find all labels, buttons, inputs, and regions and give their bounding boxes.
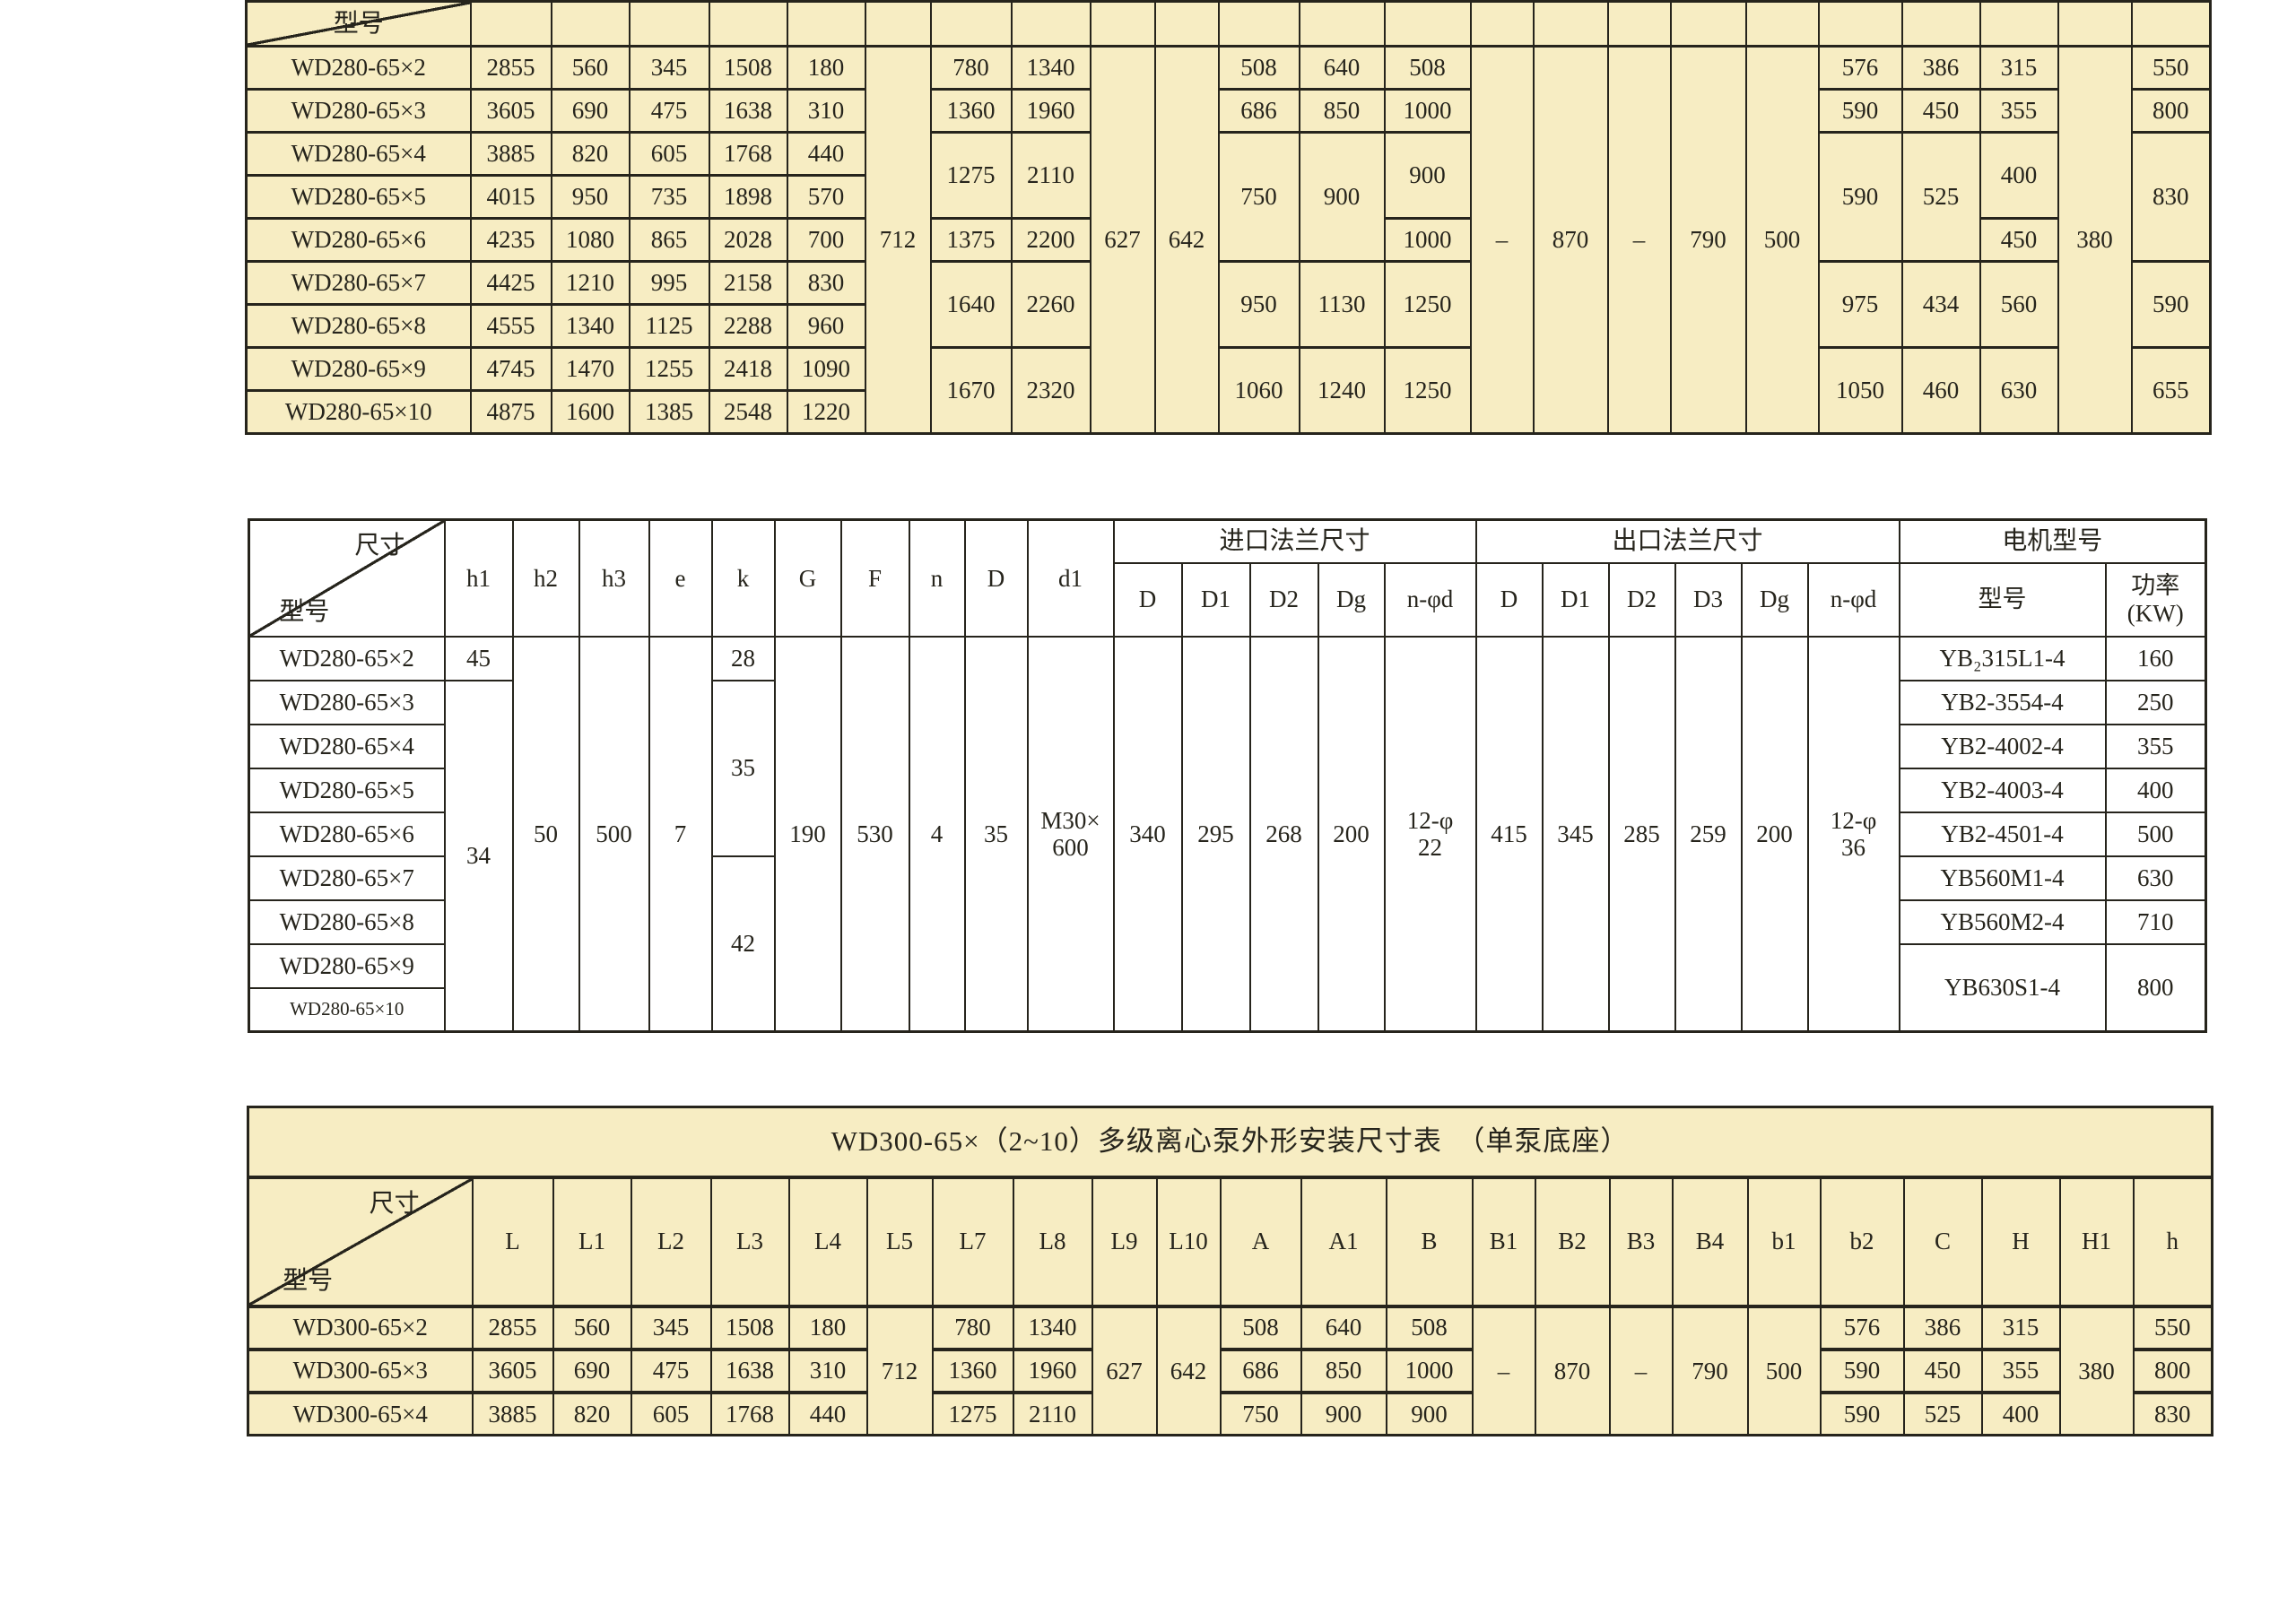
value-cell: 1340 [1012,47,1091,90]
value-cell: 340 [1114,637,1182,1032]
value-cell: 2418 [709,348,787,391]
value-cell: 750 [1221,1393,1301,1436]
value-cell: 1360 [933,1350,1013,1393]
dimension-model-diagonal-header: 尺寸型号 [248,1177,473,1306]
value-cell [2058,2,2132,47]
value-cell: 2110 [1012,133,1091,219]
column-header: H1 [2060,1177,2134,1306]
value-cell: 400 [1980,133,2058,219]
value-cell: 200 [1318,637,1385,1032]
table-title: WD300-65×（2~10）多级离心泵外形安装尺寸表 （单泵底座） [248,1107,2213,1177]
value-cell: 750 [1219,133,1300,262]
value-cell: 820 [552,133,630,176]
wd300-installation-dimension-table: WD300-65×（2~10）多级离心泵外形安装尺寸表 （单泵底座）尺寸型号LL… [247,1106,2213,1436]
value-cell: – [1471,47,1534,434]
value-cell: 640 [1301,1306,1387,1350]
value-cell: 7 [649,637,712,1032]
value-cell: 345 [630,47,709,90]
value-cell: 1385 [630,391,709,434]
value-cell: 590 [2132,262,2211,348]
column-header: h1 [445,520,513,637]
value-cell: 35 [965,637,1028,1032]
model-label: 型号 [334,10,384,38]
value-cell [630,2,709,47]
column-header: h2 [513,520,579,637]
value-cell: 500 [1746,47,1819,434]
value-cell: 380 [2058,47,2132,434]
row-label: WD280-65×8 [247,305,471,348]
row-label: WD280-65×2 [249,637,445,681]
value-cell [1534,2,1608,47]
value-cell: 259 [1675,637,1742,1032]
value-cell: 295 [1182,637,1250,1032]
value-cell: 1250 [1385,348,1471,434]
value-cell: 605 [631,1393,711,1436]
value-cell: 627 [1091,47,1155,434]
value-cell: 1250 [1385,262,1471,348]
motor-power: 160 [2106,637,2206,681]
wd280-installation-dimension-table: 型号WD280-65×22855560345150818071278013406… [245,0,2212,435]
value-cell: 850 [1300,90,1385,133]
value-cell: 900 [1300,133,1385,262]
column-header: D1 [1182,563,1250,637]
value-cell: 2158 [709,262,787,305]
value-cell: 1275 [931,133,1012,219]
value-cell: 900 [1385,133,1471,219]
value-cell: 900 [1301,1393,1387,1436]
row-label: WD280-65×4 [249,725,445,768]
value-cell: 1768 [711,1393,789,1436]
value-cell: 500 [1748,1306,1821,1436]
row-label: WD280-65×10 [249,988,445,1032]
motor-model: YB560M2-4 [1900,900,2106,944]
value-cell: 1340 [1013,1306,1092,1350]
column-header: L9 [1092,1177,1157,1306]
column-header: A1 [1301,1177,1387,1306]
column-header: b1 [1748,1177,1821,1306]
value-cell: 434 [1902,262,1980,348]
value-cell [1671,2,1746,47]
value-cell: 960 [787,305,865,348]
dimension-model-diagonal-header: 尺寸型号 [249,520,445,637]
column-header: B [1387,1177,1473,1306]
value-cell: 870 [1535,1306,1610,1436]
column-header: d1 [1028,520,1114,637]
value-cell: 800 [2132,90,2211,133]
value-cell [2132,2,2211,47]
value-cell: 4015 [471,176,552,219]
value-cell: 1080 [552,219,630,262]
value-cell [1608,2,1671,47]
value-cell: 1508 [711,1306,789,1350]
value-cell: 560 [1980,262,2058,348]
column-header: D [1114,563,1182,637]
value-cell: 45 [445,637,513,681]
value-cell: M30× 600 [1028,637,1114,1032]
value-cell [1091,2,1155,47]
value-cell: 686 [1219,90,1300,133]
row-label: WD280-65×9 [249,944,445,988]
value-cell: 560 [553,1306,631,1350]
column-header: C [1904,1177,1982,1306]
value-cell: 200 [1742,637,1808,1032]
diagonal-size-label: 尺寸 [370,1190,420,1218]
column-header: b2 [1821,1177,1904,1306]
value-cell: 3605 [473,1350,553,1393]
row-label: WD280-65×7 [249,856,445,900]
value-cell: 2288 [709,305,787,348]
value-cell: 525 [1902,133,1980,262]
value-cell: 310 [789,1350,867,1393]
value-cell: 1960 [1012,90,1091,133]
value-cell: 4 [909,637,965,1032]
row-label: WD280-65×7 [247,262,471,305]
value-cell: 1275 [933,1393,1013,1436]
value-cell: 1600 [552,391,630,434]
row-label: WD300-65×3 [248,1350,473,1393]
value-cell: 4875 [471,391,552,434]
column-header: A [1221,1177,1301,1306]
value-cell: 1210 [552,262,630,305]
column-header: h3 [579,520,649,637]
value-cell: 780 [933,1306,1013,1350]
motor-model: YB2-4002-4 [1900,725,2106,768]
value-cell: 550 [2134,1306,2213,1350]
value-cell: 180 [787,47,865,90]
value-cell: 285 [1609,637,1675,1032]
value-cell: 190 [775,637,841,1032]
value-cell: 1670 [931,348,1012,434]
value-cell: 1768 [709,133,787,176]
value-cell: 995 [630,262,709,305]
value-cell: 268 [1250,637,1318,1032]
value-cell: 508 [1387,1306,1473,1350]
value-cell: 790 [1671,47,1746,434]
value-cell: 180 [789,1306,867,1350]
value-cell: 590 [1819,90,1902,133]
value-cell: 2548 [709,391,787,434]
motor-model: YB2-3554-4 [1900,681,2106,725]
row-label: WD280-65×10 [247,391,471,434]
row-label: WD300-65×4 [248,1393,473,1436]
outlet-flange-group-header: 出口法兰尺寸 [1476,520,1900,563]
value-cell: 440 [787,133,865,176]
column-header: B1 [1473,1177,1535,1306]
diagonal-size-label: 尺寸 [354,532,404,560]
row-label: WD280-65×6 [249,812,445,856]
row-label: WD280-65×3 [247,90,471,133]
motor-power: 630 [2106,856,2206,900]
value-cell [787,2,865,47]
row-label: WD280-65×8 [249,900,445,944]
value-cell [1219,2,1300,47]
value-cell: 315 [1980,47,2058,90]
value-cell: 700 [787,219,865,262]
value-cell: 1130 [1300,262,1385,348]
value-cell: 28 [712,637,775,681]
column-header: B2 [1535,1177,1610,1306]
column-header: Dg [1318,563,1385,637]
value-cell: 460 [1902,348,1980,434]
value-cell: 576 [1821,1306,1904,1350]
column-header: n-φd [1808,563,1900,637]
value-cell: 590 [1821,1393,1904,1436]
motor-power: 400 [2106,768,2206,812]
motor-power-header: 功率 (KW) [2106,563,2206,637]
row-label: WD280-65×2 [247,47,471,90]
value-cell: 1960 [1013,1350,1092,1393]
column-header: D3 [1675,563,1742,637]
value-cell: 627 [1092,1306,1157,1436]
value-cell: 570 [787,176,865,219]
column-header: L2 [631,1177,711,1306]
value-cell: 1360 [931,90,1012,133]
value-cell: 975 [1819,262,1902,348]
value-cell: 1375 [931,219,1012,262]
value-cell [1012,2,1091,47]
value-cell [471,2,552,47]
value-cell: 34 [445,681,513,1032]
value-cell: 475 [631,1350,711,1393]
motor-model: YB560M1-4 [1900,856,2106,900]
value-cell: 605 [630,133,709,176]
value-cell: 686 [1221,1350,1301,1393]
value-cell: 530 [841,637,909,1032]
column-header: n [909,520,965,637]
value-cell: 475 [630,90,709,133]
column-header: L7 [933,1177,1013,1306]
value-cell: 310 [787,90,865,133]
model-header-clipped: 型号 [247,2,471,47]
value-cell: 4235 [471,219,552,262]
value-cell: 1898 [709,176,787,219]
value-cell [1746,2,1819,47]
value-cell: 2320 [1012,348,1091,434]
value-cell: 712 [867,1306,933,1436]
value-cell: 450 [1980,219,2058,262]
value-cell: 1255 [630,348,709,391]
value-cell [552,2,630,47]
value-cell [1471,2,1534,47]
value-cell: 450 [1904,1350,1982,1393]
motor-power: 800 [2106,944,2206,1032]
value-cell [1902,2,1980,47]
value-cell: 508 [1221,1306,1301,1350]
value-cell: 400 [1982,1393,2060,1436]
column-header: e [649,520,712,637]
value-cell: 655 [2132,348,2211,434]
value-cell: 712 [865,47,931,434]
column-header: B4 [1673,1177,1748,1306]
motor-power: 355 [2106,725,2206,768]
value-cell: 2855 [473,1306,553,1350]
column-header: D2 [1250,563,1318,637]
value-cell: 690 [552,90,630,133]
row-label: WD280-65×4 [247,133,471,176]
column-header: D [965,520,1028,637]
value-cell: 2110 [1013,1393,1092,1436]
value-cell: 830 [787,262,865,305]
value-cell: 1050 [1819,348,1902,434]
column-header: h [2134,1177,2213,1306]
document-page: 型号WD280-65×22855560345150818071278013406… [0,0,2296,1623]
value-cell: 950 [1219,262,1300,348]
row-label: WD300-65×2 [248,1306,473,1350]
value-cell: 1000 [1387,1350,1473,1393]
value-cell: 508 [1385,47,1471,90]
value-cell: 735 [630,176,709,219]
column-header: Dg [1742,563,1808,637]
value-cell: 1000 [1385,90,1471,133]
value-cell: 3885 [473,1393,553,1436]
value-cell: 12-φ 22 [1385,637,1476,1032]
value-cell: 830 [2134,1393,2213,1436]
value-cell: 2200 [1012,219,1091,262]
column-header: L5 [867,1177,933,1306]
value-cell: 1090 [787,348,865,391]
value-cell: 2260 [1012,262,1091,348]
motor-model: YB630S1-4 [1900,944,2106,1032]
motor-model: YB₂315L1-4 [1900,637,2106,681]
value-cell: 642 [1155,47,1219,434]
value-cell: 1340 [552,305,630,348]
value-cell: 450 [1902,90,1980,133]
column-header: D1 [1543,563,1609,637]
value-cell: 525 [1904,1393,1982,1436]
value-cell: 790 [1673,1306,1748,1436]
value-cell [1300,2,1385,47]
diagonal-model-label: 型号 [279,598,329,626]
value-cell: 3605 [471,90,552,133]
value-cell: 830 [2132,133,2211,262]
value-cell: 386 [1902,47,1980,90]
value-cell: 355 [1982,1350,2060,1393]
value-cell: 870 [1534,47,1608,434]
value-cell: 780 [931,47,1012,90]
motor-model: YB2-4003-4 [1900,768,2106,812]
column-header: L10 [1157,1177,1221,1306]
value-cell: 560 [552,47,630,90]
value-cell: 508 [1219,47,1300,90]
row-label: WD280-65×9 [247,348,471,391]
value-cell: – [1473,1306,1535,1436]
value-cell: 1470 [552,348,630,391]
column-header: H [1982,1177,2060,1306]
value-cell: 1638 [709,90,787,133]
value-cell: 550 [2132,47,2211,90]
column-header: L4 [789,1177,867,1306]
value-cell: 12-φ 36 [1808,637,1900,1032]
value-cell: 865 [630,219,709,262]
diagonal-model-label: 型号 [283,1267,333,1295]
motor-model: YB2-4501-4 [1900,812,2106,856]
column-header: F [841,520,909,637]
row-label: WD280-65×5 [249,768,445,812]
value-cell: 590 [1819,133,1902,262]
value-cell [1980,2,2058,47]
value-cell [1385,2,1471,47]
row-label: WD280-65×3 [249,681,445,725]
value-cell: 42 [712,856,775,1032]
value-cell [1155,2,1219,47]
value-cell [1819,2,1902,47]
value-cell: 4555 [471,305,552,348]
value-cell: – [1610,1306,1673,1436]
value-cell: 386 [1904,1306,1982,1350]
value-cell: – [1608,47,1671,434]
value-cell: 820 [553,1393,631,1436]
motor-model-header: 型号 [1900,563,2106,637]
value-cell: 380 [2060,1306,2134,1436]
value-cell: 4745 [471,348,552,391]
value-cell: 576 [1819,47,1902,90]
column-header: G [775,520,841,637]
value-cell: 1060 [1219,348,1300,434]
value-cell: 355 [1980,90,2058,133]
column-header: L8 [1013,1177,1092,1306]
value-cell: 690 [553,1350,631,1393]
value-cell: 315 [1982,1306,2060,1350]
value-cell [709,2,787,47]
column-header: B3 [1610,1177,1673,1306]
inlet-flange-group-header: 进口法兰尺寸 [1114,520,1476,563]
value-cell: 1125 [630,305,709,348]
value-cell: 630 [1980,348,2058,434]
value-cell: 50 [513,637,579,1032]
value-cell: 440 [789,1393,867,1436]
value-cell: 1220 [787,391,865,434]
value-cell: 415 [1476,637,1543,1032]
value-cell [865,2,931,47]
value-cell: 642 [1157,1306,1221,1436]
value-cell: 2855 [471,47,552,90]
motor-group-header: 电机型号 [1900,520,2206,563]
column-header: n-φd [1385,563,1476,637]
value-cell: 2028 [709,219,787,262]
value-cell: 900 [1387,1393,1473,1436]
value-cell: 1000 [1385,219,1471,262]
wd280-detail-flange-motor-table: 尺寸型号h1h2h3ekGFnDd1进口法兰尺寸出口法兰尺寸电机型号DD1D2D… [248,518,2207,1033]
value-cell: 1638 [711,1350,789,1393]
value-cell [931,2,1012,47]
value-cell: 800 [2134,1350,2213,1393]
value-cell: 345 [631,1306,711,1350]
row-label: WD280-65×6 [247,219,471,262]
column-header: L1 [553,1177,631,1306]
row-label: WD280-65×5 [247,176,471,219]
value-cell: 35 [712,681,775,856]
value-cell: 345 [1543,637,1609,1032]
value-cell: 1508 [709,47,787,90]
column-header: L [473,1177,553,1306]
motor-power: 500 [2106,812,2206,856]
motor-power: 250 [2106,681,2206,725]
value-cell: 590 [1821,1350,1904,1393]
value-cell: 640 [1300,47,1385,90]
value-cell: 500 [579,637,649,1032]
value-cell: 4425 [471,262,552,305]
column-header: L3 [711,1177,789,1306]
column-header: D2 [1609,563,1675,637]
motor-power: 710 [2106,900,2206,944]
value-cell: 1640 [931,262,1012,348]
value-cell: 850 [1301,1350,1387,1393]
value-cell: 950 [552,176,630,219]
column-header: k [712,520,775,637]
value-cell: 1240 [1300,348,1385,434]
column-header: D [1476,563,1543,637]
value-cell: 3885 [471,133,552,176]
